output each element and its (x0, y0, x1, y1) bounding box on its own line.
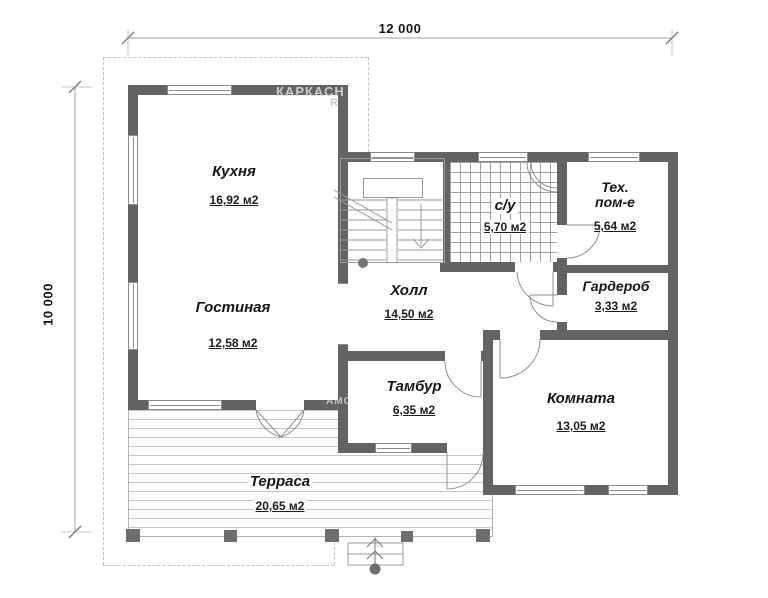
room-label-bathroom: с/у 5,70 м2 (445, 198, 565, 234)
window (478, 152, 528, 162)
door-gap (447, 443, 483, 453)
room-name: с/у (492, 198, 519, 214)
room-name: Терраса (247, 474, 313, 490)
room-name: Тех. пом-е (595, 180, 635, 210)
window (608, 485, 648, 495)
dimension-height-label: 10 000 (41, 265, 56, 345)
room-label-kitchen: Кухня 16,92 м2 (154, 164, 314, 207)
room-name: Тамбур (386, 379, 441, 395)
door-gap (256, 400, 304, 410)
room-name: Гостиная (196, 300, 271, 316)
watermark-text: R (330, 97, 339, 109)
window (375, 443, 412, 453)
room-area: 16,92 м2 (210, 193, 259, 207)
boundary-dash-top (103, 57, 368, 58)
boundary-dash-bottom (103, 565, 334, 566)
room-label-vestibule: Тамбур 6,35 м2 (334, 379, 494, 417)
room-name: Кухня (212, 164, 256, 180)
room-label-terrace: Терраса 20,65 м2 (200, 474, 360, 513)
boundary-dash-left (103, 57, 104, 565)
door-gap (500, 330, 540, 340)
watermark-text: АМС (326, 396, 352, 407)
boundary-dash-right-upper (368, 57, 369, 152)
staircase (334, 159, 445, 264)
window (128, 135, 138, 205)
window (128, 282, 138, 350)
room-name: Гардероб (583, 279, 650, 294)
window (167, 85, 232, 95)
room-area: 12,58 м2 (209, 336, 258, 350)
entrance-marker (370, 564, 381, 575)
room-label-room: Комната 13,05 м2 (501, 391, 661, 433)
room-label-living-room: Гостиная 12,58 м2 (153, 300, 313, 350)
room-label-tech-room: Тех. пом-е 5,64 м2 (555, 180, 675, 233)
window (515, 485, 585, 495)
room-area: 5,70 м2 (481, 220, 529, 234)
room-name: Комната (547, 391, 615, 407)
room-label-wardrobe: Гардероб 3,33 м2 (536, 279, 696, 313)
room-area: 13,05 м2 (557, 419, 606, 433)
stair-newel-post (358, 258, 368, 268)
entrance-steps (348, 537, 403, 575)
room-area: 14,50 м2 (385, 307, 434, 321)
room-label-hall: Холл 14,50 м2 (329, 283, 489, 321)
door-gap (445, 351, 481, 361)
dimension-width-label: 12 000 (350, 21, 450, 36)
room-area: 5,64 м2 (594, 219, 636, 233)
room-area: 3,33 м2 (595, 299, 637, 313)
window (370, 152, 415, 162)
wall (128, 85, 138, 410)
window (588, 152, 640, 162)
floor-plan: 12 000 10 000 (0, 0, 768, 598)
room-area: 6,35 м2 (393, 403, 435, 417)
room-area: 20,65 м2 (253, 499, 308, 513)
wall (557, 265, 678, 273)
door-gap (515, 262, 553, 272)
room-name: Холл (390, 283, 427, 299)
door-arc-room (500, 340, 540, 378)
window (148, 400, 222, 410)
